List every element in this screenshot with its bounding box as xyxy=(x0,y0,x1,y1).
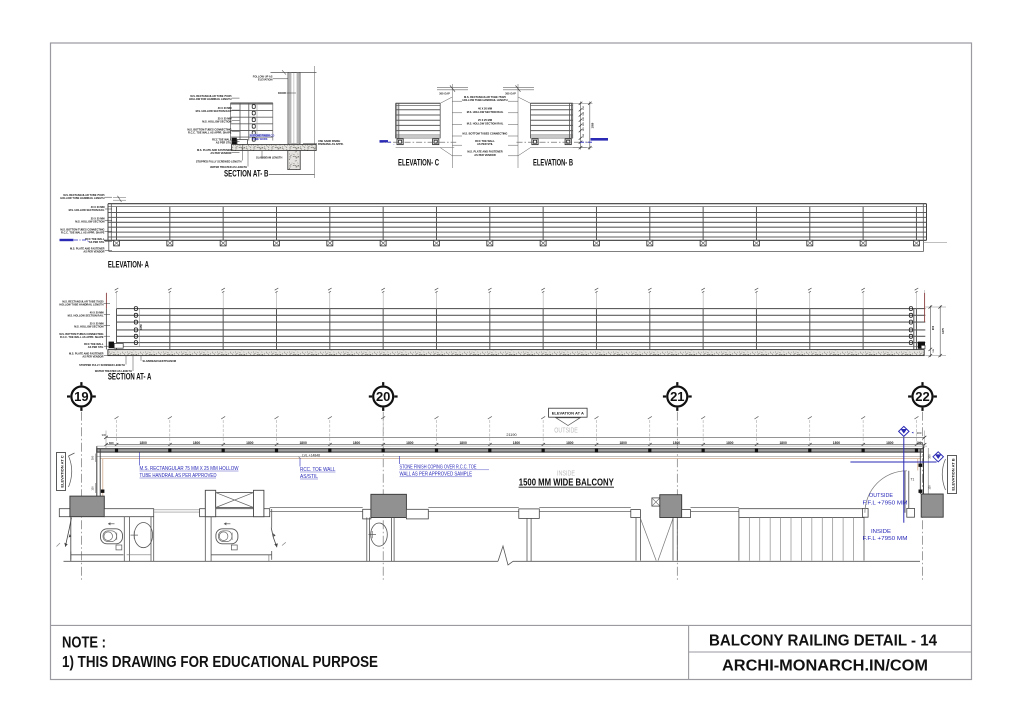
svg-text:1800: 1800 xyxy=(673,441,681,445)
svg-text:1800: 1800 xyxy=(886,441,894,445)
svg-text:M.S. HOLLOW SECTION RAIL: M.S. HOLLOW SECTION RAIL xyxy=(196,109,232,113)
svg-text:M.S. HOLLOW SECTION RAIL: M.S. HOLLOW SECTION RAIL xyxy=(69,208,105,212)
svg-text:M.S. HOLLOW SECTION: M.S. HOLLOW SECTION xyxy=(75,219,104,223)
svg-text:300: 300 xyxy=(102,433,107,437)
svg-text:LVL +14848: LVL +14848 xyxy=(302,454,320,458)
svg-text:INSIDE: INSIDE xyxy=(871,529,891,535)
svg-text:21: 21 xyxy=(670,389,684,404)
svg-text:300: 300 xyxy=(928,454,932,459)
svg-text:1800: 1800 xyxy=(779,441,787,445)
svg-text:DOOR: DOOR xyxy=(278,91,286,95)
svg-text:ELEVATION- B: ELEVATION- B xyxy=(533,158,573,168)
svg-text:AS PER STIL: AS PER STIL xyxy=(89,240,105,244)
svg-text:21190: 21190 xyxy=(506,433,516,437)
svg-text:TONE WORK: TONE WORK xyxy=(252,138,268,141)
svg-text:1050: 1050 xyxy=(591,122,595,128)
svg-text:22: 22 xyxy=(915,389,929,404)
svg-text:HOLLOW FOR HANDRAIL LENGTH: HOLLOW FOR HANDRAIL LENGTH xyxy=(189,97,232,101)
svg-text:R.C.C. TOE WALL AS APPR. SHAPE: R.C.C. TOE WALL AS APPR. SHAPE xyxy=(60,335,104,339)
svg-text:BALCONY RAILING DETAIL - 14: BALCONY RAILING DETAIL - 14 xyxy=(709,632,937,649)
svg-text:SECTION AT- B: SECTION AT- B xyxy=(224,169,269,179)
svg-text:HOLLOW TUBE HANDRAIL LENGTH: HOLLOW TUBE HANDRAIL LENGTH xyxy=(60,196,104,200)
svg-text:M.S. HOLLOW SECTION RAIL: M.S. HOLLOW SECTION RAIL xyxy=(467,110,504,114)
svg-text:150: 150 xyxy=(91,486,95,491)
svg-text:M.S. HOLLOW SECTION RAIL: M.S. HOLLOW SECTION RAIL xyxy=(467,121,504,125)
svg-text:1275: 1275 xyxy=(941,328,945,334)
svg-text:1800: 1800 xyxy=(406,441,414,445)
svg-text:AS PER STIL: AS PER STIL xyxy=(477,142,493,146)
svg-text:SLAB/BEAM HEKTPLENUM: SLAB/BEAM HEKTPLENUM xyxy=(143,359,177,363)
svg-text:AS PER VENDOR: AS PER VENDOR xyxy=(82,354,103,358)
svg-text:ELEVATION- A: ELEVATION- A xyxy=(108,259,149,269)
svg-text:ELEVATION AT B: ELEVATION AT B xyxy=(950,458,955,490)
svg-text:1) THIS DRAWING FOR EDUCATIONA: 1) THIS DRAWING FOR EDUCATIONAL PURPOSE xyxy=(62,654,378,671)
svg-text:AS PER VENDOR: AS PER VENDOR xyxy=(474,153,496,157)
svg-text:STOPPED FULLY SCREWED LENGTH: STOPPED FULLY SCREWED LENGTH xyxy=(196,159,242,163)
svg-text:STOPPED FULLY SCREWED LENGTH: STOPPED FULLY SCREWED LENGTH xyxy=(79,363,125,367)
svg-text:1800: 1800 xyxy=(726,441,734,445)
svg-text:ELEVATION: ELEVATION xyxy=(258,77,273,81)
svg-text:19: 19 xyxy=(74,389,88,404)
svg-text:300: 300 xyxy=(91,455,95,460)
svg-text:HOLLOW TUBE HANDRAIL LENGTH: HOLLOW TUBE HANDRAIL LENGTH xyxy=(59,303,103,307)
svg-text:ELEVATION AT A: ELEVATION AT A xyxy=(552,411,584,416)
svg-text:150: 150 xyxy=(928,485,932,490)
svg-text:900: 900 xyxy=(931,325,935,330)
svg-text:OUTSIDE: OUTSIDE xyxy=(554,428,578,435)
svg-text:300: 300 xyxy=(916,431,921,435)
svg-text:300: 300 xyxy=(109,441,114,445)
svg-text:F.F.L +7950 MM: F.F.L +7950 MM xyxy=(863,536,909,542)
svg-text:1800: 1800 xyxy=(353,441,361,445)
svg-text:◄: ◄ xyxy=(911,431,914,435)
svg-text:M.S. BOTTOM TUBES CONNECTING: M.S. BOTTOM TUBES CONNECTING xyxy=(463,131,508,135)
svg-text:300: 300 xyxy=(916,441,921,445)
svg-text:ELEVATION- C: ELEVATION- C xyxy=(398,158,439,168)
svg-text:F.F.L +7950 MM: F.F.L +7950 MM xyxy=(863,500,909,506)
svg-text:1800: 1800 xyxy=(619,441,627,445)
svg-text:20: 20 xyxy=(376,389,390,404)
svg-text:1050: 1050 xyxy=(139,324,143,330)
svg-text:1800: 1800 xyxy=(513,441,521,445)
svg-text:FINISHING AS APPR.: FINISHING AS APPR. xyxy=(318,142,344,146)
svg-text:AS PER STIL: AS PER STIL xyxy=(216,140,232,144)
svg-text:1800: 1800 xyxy=(566,441,574,445)
svg-text:AS PER VENDOR: AS PER VENDOR xyxy=(210,151,231,155)
svg-text:T1: T1 xyxy=(911,478,915,482)
svg-text:M.S. HOLLOW SECTION: M.S. HOLLOW SECTION xyxy=(202,119,231,123)
svg-text:AS PER VENDOR: AS PER VENDOR xyxy=(83,249,104,253)
svg-text:OUTSIDE: OUTSIDE xyxy=(869,493,893,499)
svg-text:AS PER STIL: AS PER STIL xyxy=(88,345,104,349)
svg-text:R.C.C. TOE WALL AS APPR. SHAPE: R.C.C. TOE WALL AS APPR. SHAPE xyxy=(61,230,105,234)
svg-text:1800: 1800 xyxy=(459,441,467,445)
svg-text:1800: 1800 xyxy=(139,441,147,445)
svg-text:SECTION AT- A: SECTION AT- A xyxy=(108,371,152,381)
svg-text:ELEVATION AT C: ELEVATION AT C xyxy=(59,455,64,487)
svg-text:1800: 1800 xyxy=(299,441,307,445)
svg-text:300 GAP: 300 GAP xyxy=(439,92,450,96)
svg-text:M.S. HOLLOW SECTION: M.S. HOLLOW SECTION xyxy=(74,325,103,329)
svg-text:NOTE :: NOTE : xyxy=(62,635,106,652)
svg-text:SLAB/BEAM LENGTH: SLAB/BEAM LENGTH xyxy=(256,156,282,160)
svg-text:1800: 1800 xyxy=(833,441,841,445)
svg-text:R.C.C. TOE WALL AS APPR. SHAPE: R.C.C. TOE WALL AS APPR. SHAPE xyxy=(188,130,232,134)
svg-text:1800: 1800 xyxy=(193,441,201,445)
svg-text:300 GAP: 300 GAP xyxy=(505,92,516,96)
svg-text:←: ← xyxy=(393,142,396,146)
svg-text:HOLLOW TUBE HANDRAIL LENGTH: HOLLOW TUBE HANDRAIL LENGTH xyxy=(463,98,508,102)
svg-text:1800: 1800 xyxy=(246,441,254,445)
svg-text:M.S. HOLLOW SECTION RAIL: M.S. HOLLOW SECTION RAIL xyxy=(68,314,104,318)
svg-text:ARCHI-MONARCH.IN/COM: ARCHI-MONARCH.IN/COM xyxy=(722,658,928,675)
